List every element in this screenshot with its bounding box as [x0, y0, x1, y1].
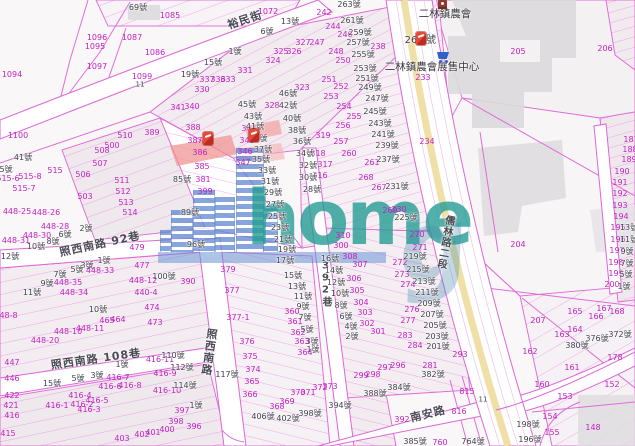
cart-icon[interactable]: [436, 51, 450, 64]
map-icons-layer: [0, 0, 635, 446]
sale-pin-icon[interactable]: [249, 129, 259, 142]
farmers-association-marker-icon[interactable]: [438, 0, 447, 9]
cadastral-map-canvas[interactable]: home g 裕民街照西南路 92巷照西南路 108巷照西南路392巷南安路儒林…: [0, 0, 635, 446]
sale-pin-icon[interactable]: [203, 132, 213, 145]
sale-pin-icon[interactable]: [416, 32, 426, 45]
